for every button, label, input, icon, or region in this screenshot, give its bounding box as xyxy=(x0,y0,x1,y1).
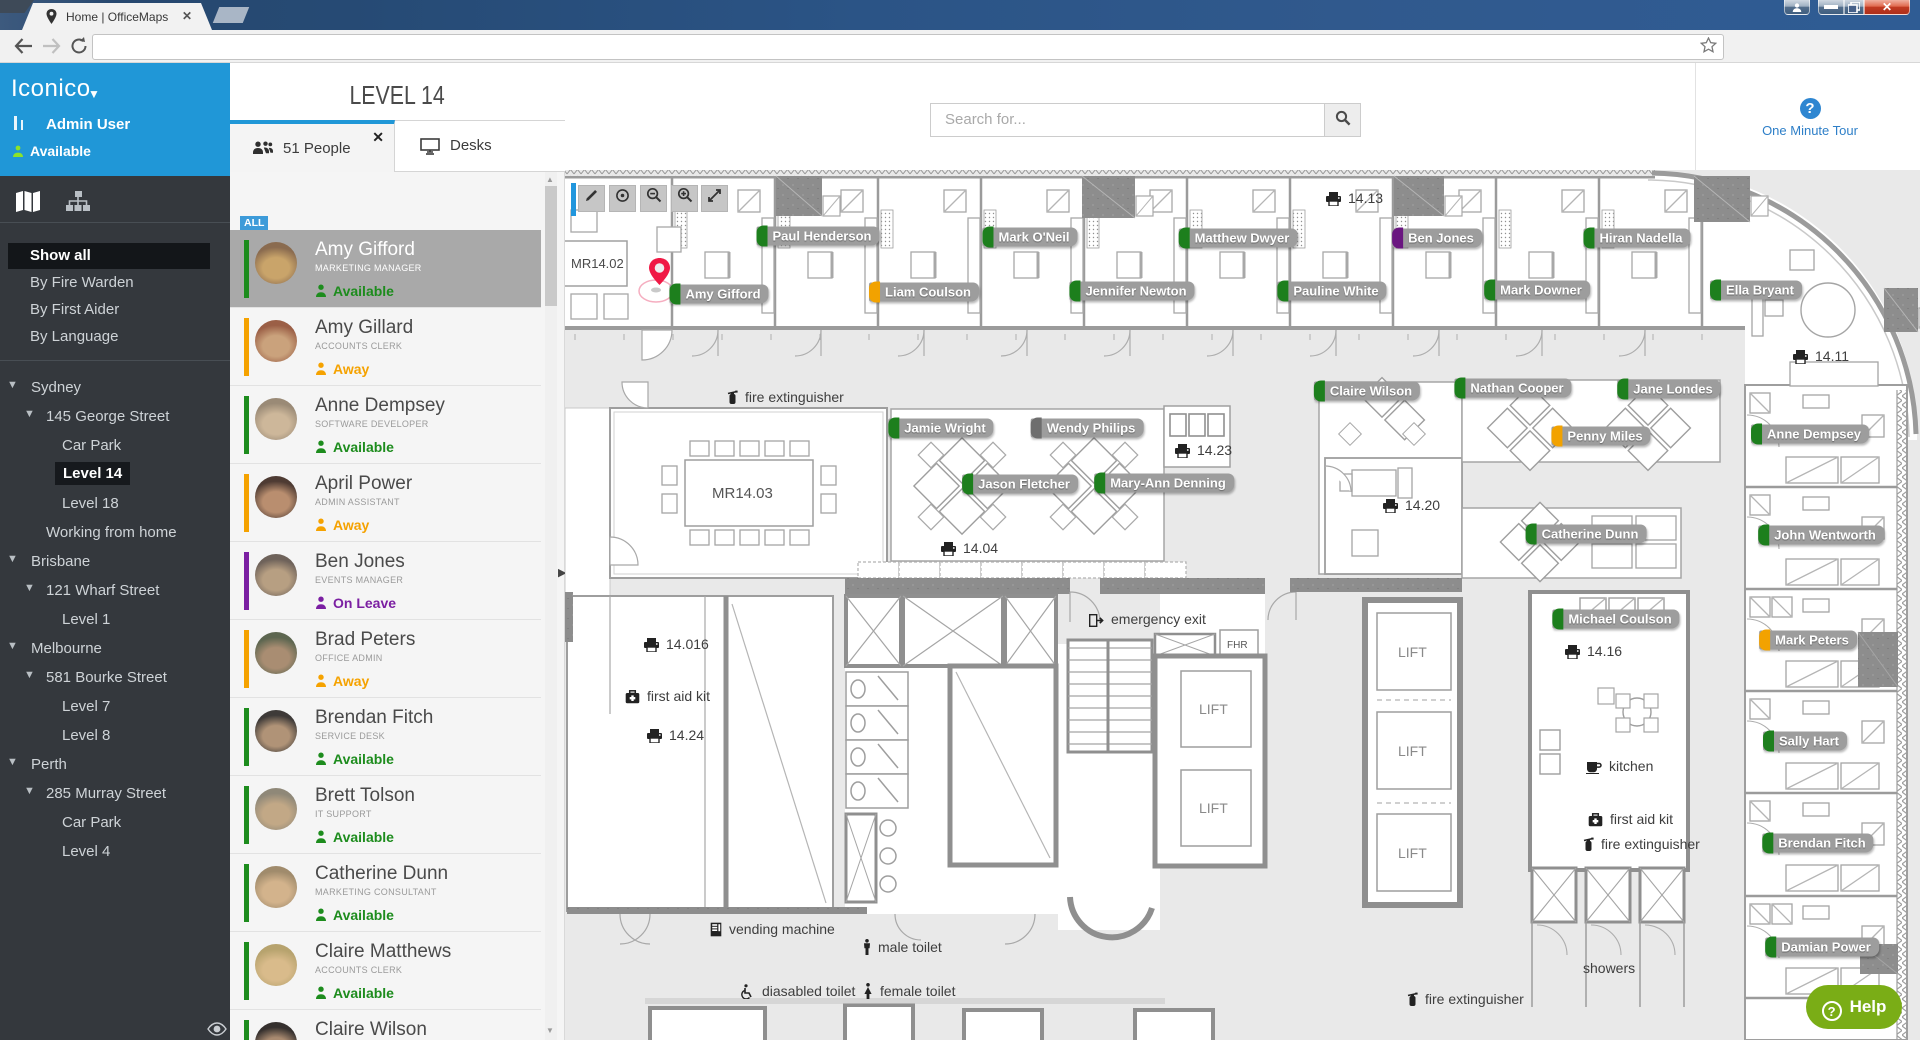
svg-text:LIFT: LIFT xyxy=(1199,800,1228,816)
svg-text:LIFT: LIFT xyxy=(1398,845,1427,861)
svg-text:LIFT: LIFT xyxy=(1398,644,1427,660)
svg-text:LIFT: LIFT xyxy=(1398,743,1427,759)
svg-text:MR14.02: MR14.02 xyxy=(571,256,624,271)
svg-text:FHR: FHR xyxy=(1227,640,1248,651)
svg-text:LIFT: LIFT xyxy=(1199,701,1228,717)
svg-text:MR14.03: MR14.03 xyxy=(712,485,773,502)
